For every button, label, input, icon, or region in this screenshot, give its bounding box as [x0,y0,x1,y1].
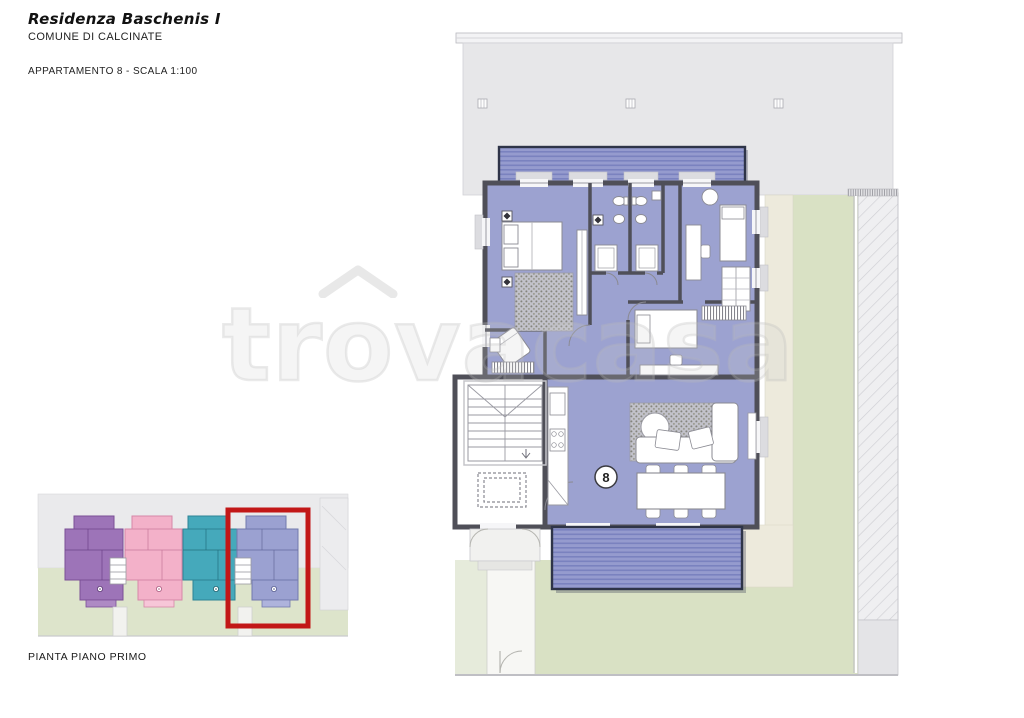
terrace-drain-icon [478,99,487,108]
bookshelf [702,306,746,320]
entrance-porch [470,529,540,570]
apartment-scale-label: APPARTAMENTO 8 - SCALA 1:100 [28,66,197,77]
mini-path [238,607,252,636]
watermark-text: tr [222,286,323,405]
ceiling-light-icon [593,215,603,225]
municipality-subtitle: COMUNE DI CALCINATE [28,31,163,43]
stove [550,429,565,451]
radiator-icon [492,362,534,373]
single-bed [635,310,697,348]
dining-table [637,473,725,509]
ceiling-light-icon [502,277,512,287]
driveway-hatched [848,189,898,675]
shower [595,245,617,271]
shower [636,245,658,271]
watermark-text: o [323,286,394,405]
balcony-bottom [552,527,746,593]
svg-text:8: 8 [602,470,609,485]
overview-plan-label: PIANTA PIANO PRIMO [28,651,147,663]
kitchen-counter [548,387,568,505]
mini-stairwell [110,558,126,584]
apartment-number-badge: 8 [595,466,617,488]
garden-path [487,560,535,675]
side-table [702,189,718,205]
overview-plan-svg [30,488,360,648]
terrace-drain-icon [774,99,783,108]
main-floor-plan: 8 [440,25,1024,690]
wardrobe [722,267,750,311]
main-plan-svg: 8 [440,25,1024,690]
single-bed [720,205,746,261]
floor-plan-sheet: Residenza Baschenis I COMUNE DI CALCINAT… [0,0,1024,718]
dining-set [637,465,725,518]
wardrobe [577,230,587,315]
double-bed [502,222,562,270]
mini-path [113,607,127,636]
house-roof-icon [315,264,401,298]
mini-driveway [320,498,348,610]
radiator-icon [748,413,756,459]
terrace-drain-icon [626,99,635,108]
kitchen-sink [550,393,565,415]
mini-stairwell [235,558,251,584]
residence-title: Residenza Baschenis I [28,10,221,28]
ceiling-light-icon [502,211,512,221]
bedroom-rug [515,273,573,331]
overview-plan [30,488,360,648]
